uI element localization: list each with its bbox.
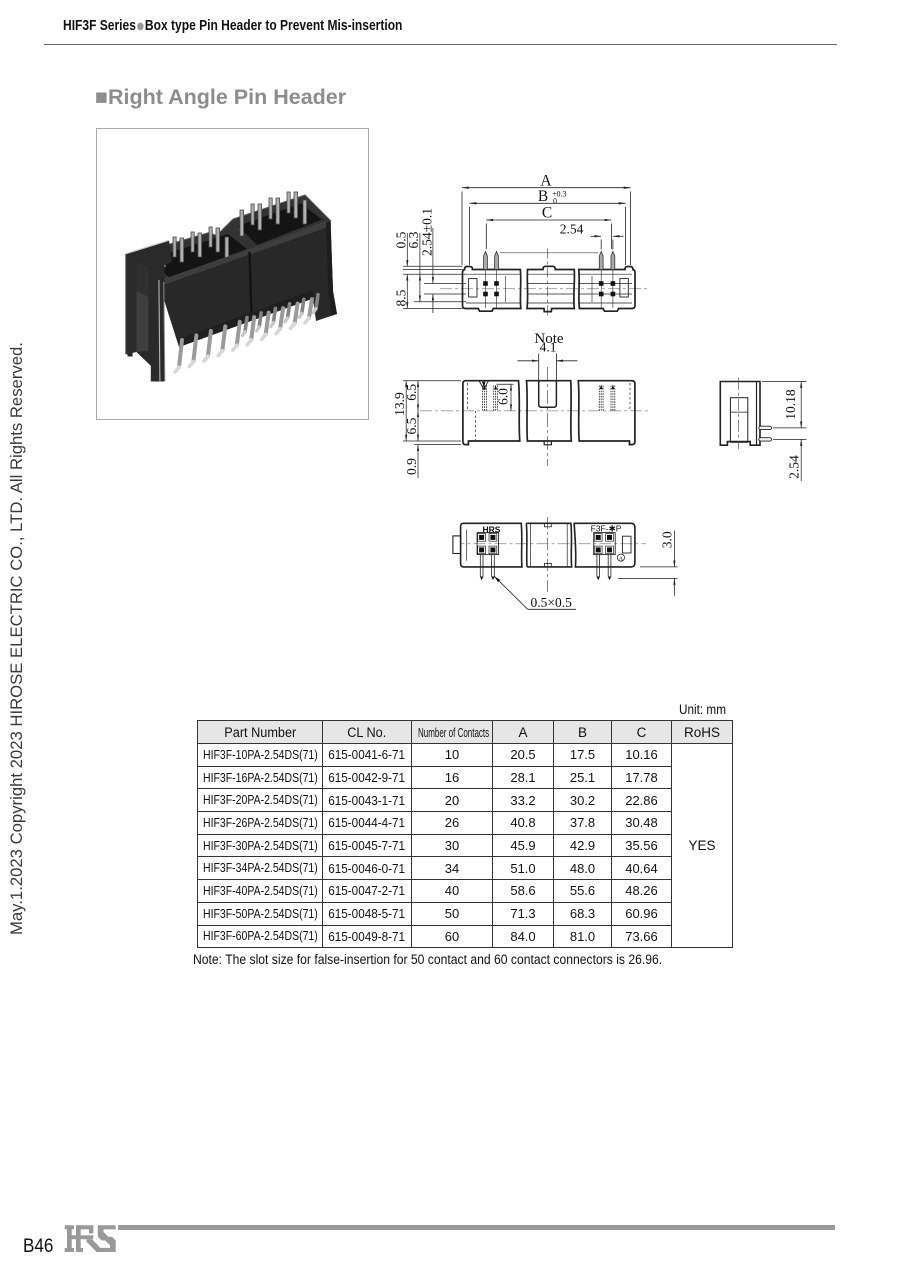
svg-text:HRS: HRS bbox=[483, 525, 501, 535]
svg-text:2.54±0.1: 2.54±0.1 bbox=[420, 208, 435, 256]
svg-text:F3F-✱P: F3F-✱P bbox=[591, 524, 622, 534]
svg-text:0.9: 0.9 bbox=[404, 458, 419, 475]
svg-text:6.0: 6.0 bbox=[496, 388, 511, 405]
svg-text:0: 0 bbox=[553, 197, 557, 206]
svg-text:6.5: 6.5 bbox=[404, 417, 419, 434]
svg-text:8.5: 8.5 bbox=[394, 289, 409, 306]
svg-text:C: C bbox=[542, 205, 552, 222]
svg-text:A: A bbox=[540, 173, 552, 190]
svg-text:4.1: 4.1 bbox=[540, 340, 557, 355]
svg-text:A: A bbox=[619, 555, 624, 562]
svg-text:B: B bbox=[538, 188, 548, 205]
svg-text:6.5: 6.5 bbox=[404, 384, 419, 401]
svg-text:10.18: 10.18 bbox=[783, 389, 798, 420]
svg-text:2.54: 2.54 bbox=[560, 222, 584, 237]
svg-text:3.0: 3.0 bbox=[660, 531, 675, 548]
svg-text:0.5×0.5: 0.5×0.5 bbox=[531, 595, 573, 610]
svg-text:2.54: 2.54 bbox=[787, 455, 802, 479]
